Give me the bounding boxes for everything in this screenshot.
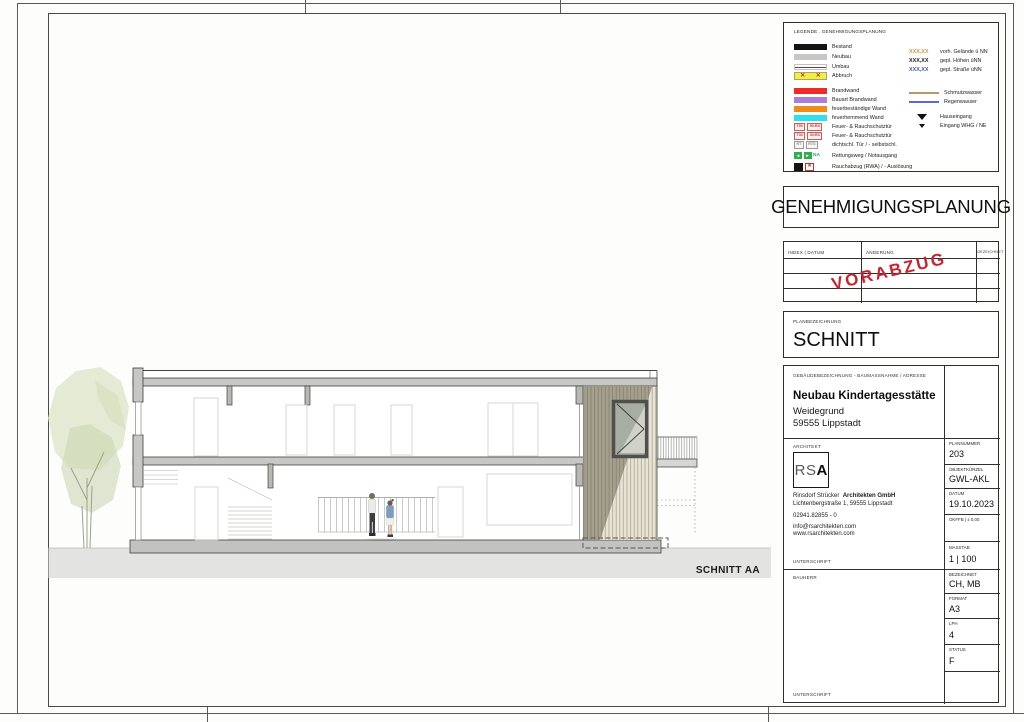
meta-cell-okffb: OKFFB | ± 0,00 xyxy=(945,514,979,525)
door-dicht-icon: RT RTS xyxy=(794,141,827,149)
plan-sheet: SCHNITT AA LEGENDE . GENEHMIGUNGSPLANUNG… xyxy=(0,0,1024,722)
legend-item: T30 30-RS Feuer- & Rauchschutztür xyxy=(794,132,892,140)
legend-item: RT RTS dichtschl. Tür / - selbstschl. xyxy=(794,141,897,149)
bestand-swatch xyxy=(794,44,827,51)
legend: LEGENDE . GENEHMIGUNGSPLANUNG Bestand Ne… xyxy=(783,22,999,172)
rescue-route-icon: ◄ ► NA xyxy=(794,152,827,159)
col-index-datum: INDEX | DATUM xyxy=(788,250,824,255)
legend-item: ✕ Rauchabzug (RWA) / - Auslösung xyxy=(794,162,912,172)
phase-box: GENEHMIGUNGSPLANUNG xyxy=(783,186,999,228)
project-city: 59555 Lippstadt xyxy=(793,418,861,429)
project-name: Neubau Kindertagesstätte xyxy=(793,390,936,402)
architect-logo: RSA xyxy=(793,452,829,488)
arrow-left-icon: ◄ xyxy=(794,152,802,159)
plan-title-box: PLANBEZEICHNUNG SCHNITT xyxy=(783,311,999,358)
meta-cell-datum: DATUM 19.10.2023 xyxy=(945,488,994,509)
legend-item: Neubau xyxy=(794,53,851,61)
legend-entrance: Hauseingang xyxy=(909,112,972,121)
neubau-swatch xyxy=(794,54,827,61)
plan-title-value: SCHNITT xyxy=(793,329,880,352)
architect-phone: 02941.82855 - 0 xyxy=(793,513,837,519)
house-entrance-icon xyxy=(909,114,935,120)
legend-item: Brandwand xyxy=(794,87,859,95)
legend-title: LEGENDE . GENEHMIGUNGSPLANUNG xyxy=(794,29,886,34)
legend-level: XXX,XX vorh. Gelände ü NN xyxy=(909,48,988,56)
revision-table: INDEX | DATUM ÄNDERUNG GEZEICHNET VORABZ… xyxy=(783,241,999,302)
col-aenderung: ÄNDERUNG xyxy=(866,250,894,255)
bauart-brandwand-swatch xyxy=(794,97,827,104)
regenwasser-line-icon xyxy=(909,101,939,103)
door-t90-icon: T90 90-RS xyxy=(794,123,827,131)
meta-cell-masstab: MASSTAB 1 | 100 xyxy=(945,541,976,564)
architect-email: info@rsarchitekten.com xyxy=(793,524,856,530)
brandwand-swatch xyxy=(794,88,827,95)
umbau-swatch xyxy=(794,64,827,71)
rwa-x-icon: ✕ xyxy=(805,163,814,171)
project-street: Weidegrund xyxy=(793,406,844,417)
legend-level: XXX,XX gepl. Höhen üNN xyxy=(909,57,981,65)
interior-railing xyxy=(318,498,435,533)
col-gezeichnet: GEZEICHNET xyxy=(977,250,1003,254)
architect-signature-label: UNTERSCHRIFT xyxy=(793,559,831,564)
legend-item: Bestand xyxy=(794,43,852,51)
legend-item: ◄ ► NA Rettungsweg / Notausgang xyxy=(794,151,897,160)
building-section xyxy=(130,368,697,553)
meta-cell-objektkuerzel: OBJEKTKÜRZEL GWL-AKL xyxy=(945,464,990,484)
feuerhemmend-swatch xyxy=(794,115,827,122)
arrow-right-icon: ► xyxy=(804,152,812,159)
tree xyxy=(48,367,129,548)
abbruch-swatch: ✕✕ xyxy=(794,72,827,81)
legend-level: XXX,XX gepl. Straße üNN xyxy=(909,66,982,74)
title-block: GEBÄUDEBEZEICHNUNG - BAUMASSNAHME / ADRE… xyxy=(783,365,999,703)
phase-title: GENEHMIGUNGSPLANUNG xyxy=(771,196,1011,218)
meta-cell-lph: LPH 4 xyxy=(945,618,958,640)
legend-entrance: Eingang WHG / NE xyxy=(909,122,986,130)
meta-cell-bezeichnet: BEZEICHNET CH, MB xyxy=(945,569,981,589)
bay-window xyxy=(614,402,647,457)
architect-firm-bold: Architekten GmbH xyxy=(843,493,896,499)
legend-item: ✕✕ Abbruch xyxy=(794,71,852,81)
legend-pipe: Regenwasser xyxy=(909,98,977,106)
unit-entrance-icon xyxy=(909,124,935,128)
section-caption: SCHNITT AA xyxy=(660,565,760,576)
plan-title-label: PLANBEZEICHNUNG xyxy=(793,319,841,324)
legend-item: T90 90-RS Feuer- & Rauchschutztür xyxy=(794,123,892,131)
architect-address: Lichtenbergstraße 1, 59555 Lippstadt xyxy=(793,501,892,507)
meta-cell-format: FORMAT A3 xyxy=(945,593,967,614)
legend-item: feuerbeständige Wand xyxy=(794,105,886,113)
schmutzwasser-line-icon xyxy=(909,92,939,94)
client-signature-label: UNTERSCHRIFT xyxy=(793,692,831,697)
feuerbestaendig-swatch xyxy=(794,106,827,113)
rwa-black-icon xyxy=(794,163,803,171)
meta-cell-plannummer: PLANNUMMER 203 xyxy=(945,438,980,459)
door-t30-icon: T30 30-RS xyxy=(794,132,827,140)
legend-item: Bauart Brandwand xyxy=(794,96,877,104)
legend-pipe: Schmutzwasser xyxy=(909,89,982,97)
architect-firm: Rinsdorf Strücker xyxy=(793,493,839,499)
balcony xyxy=(657,437,697,467)
architect-label: ARCHITEKT xyxy=(793,444,821,449)
meta-cell-status: STATUS F xyxy=(945,644,966,666)
client-label: BAUHERR xyxy=(793,575,817,580)
legend-item: Umbau xyxy=(794,63,849,71)
architect-web: www.rsarchitekten.com xyxy=(793,531,855,537)
legend-item: feuerhemmend Wand xyxy=(794,114,884,122)
project-label: GEBÄUDEBEZEICHNUNG - BAUMASSNAHME / ADRE… xyxy=(793,373,926,378)
rwa-icon: ✕ xyxy=(794,163,827,171)
dotted-lines xyxy=(657,467,695,535)
